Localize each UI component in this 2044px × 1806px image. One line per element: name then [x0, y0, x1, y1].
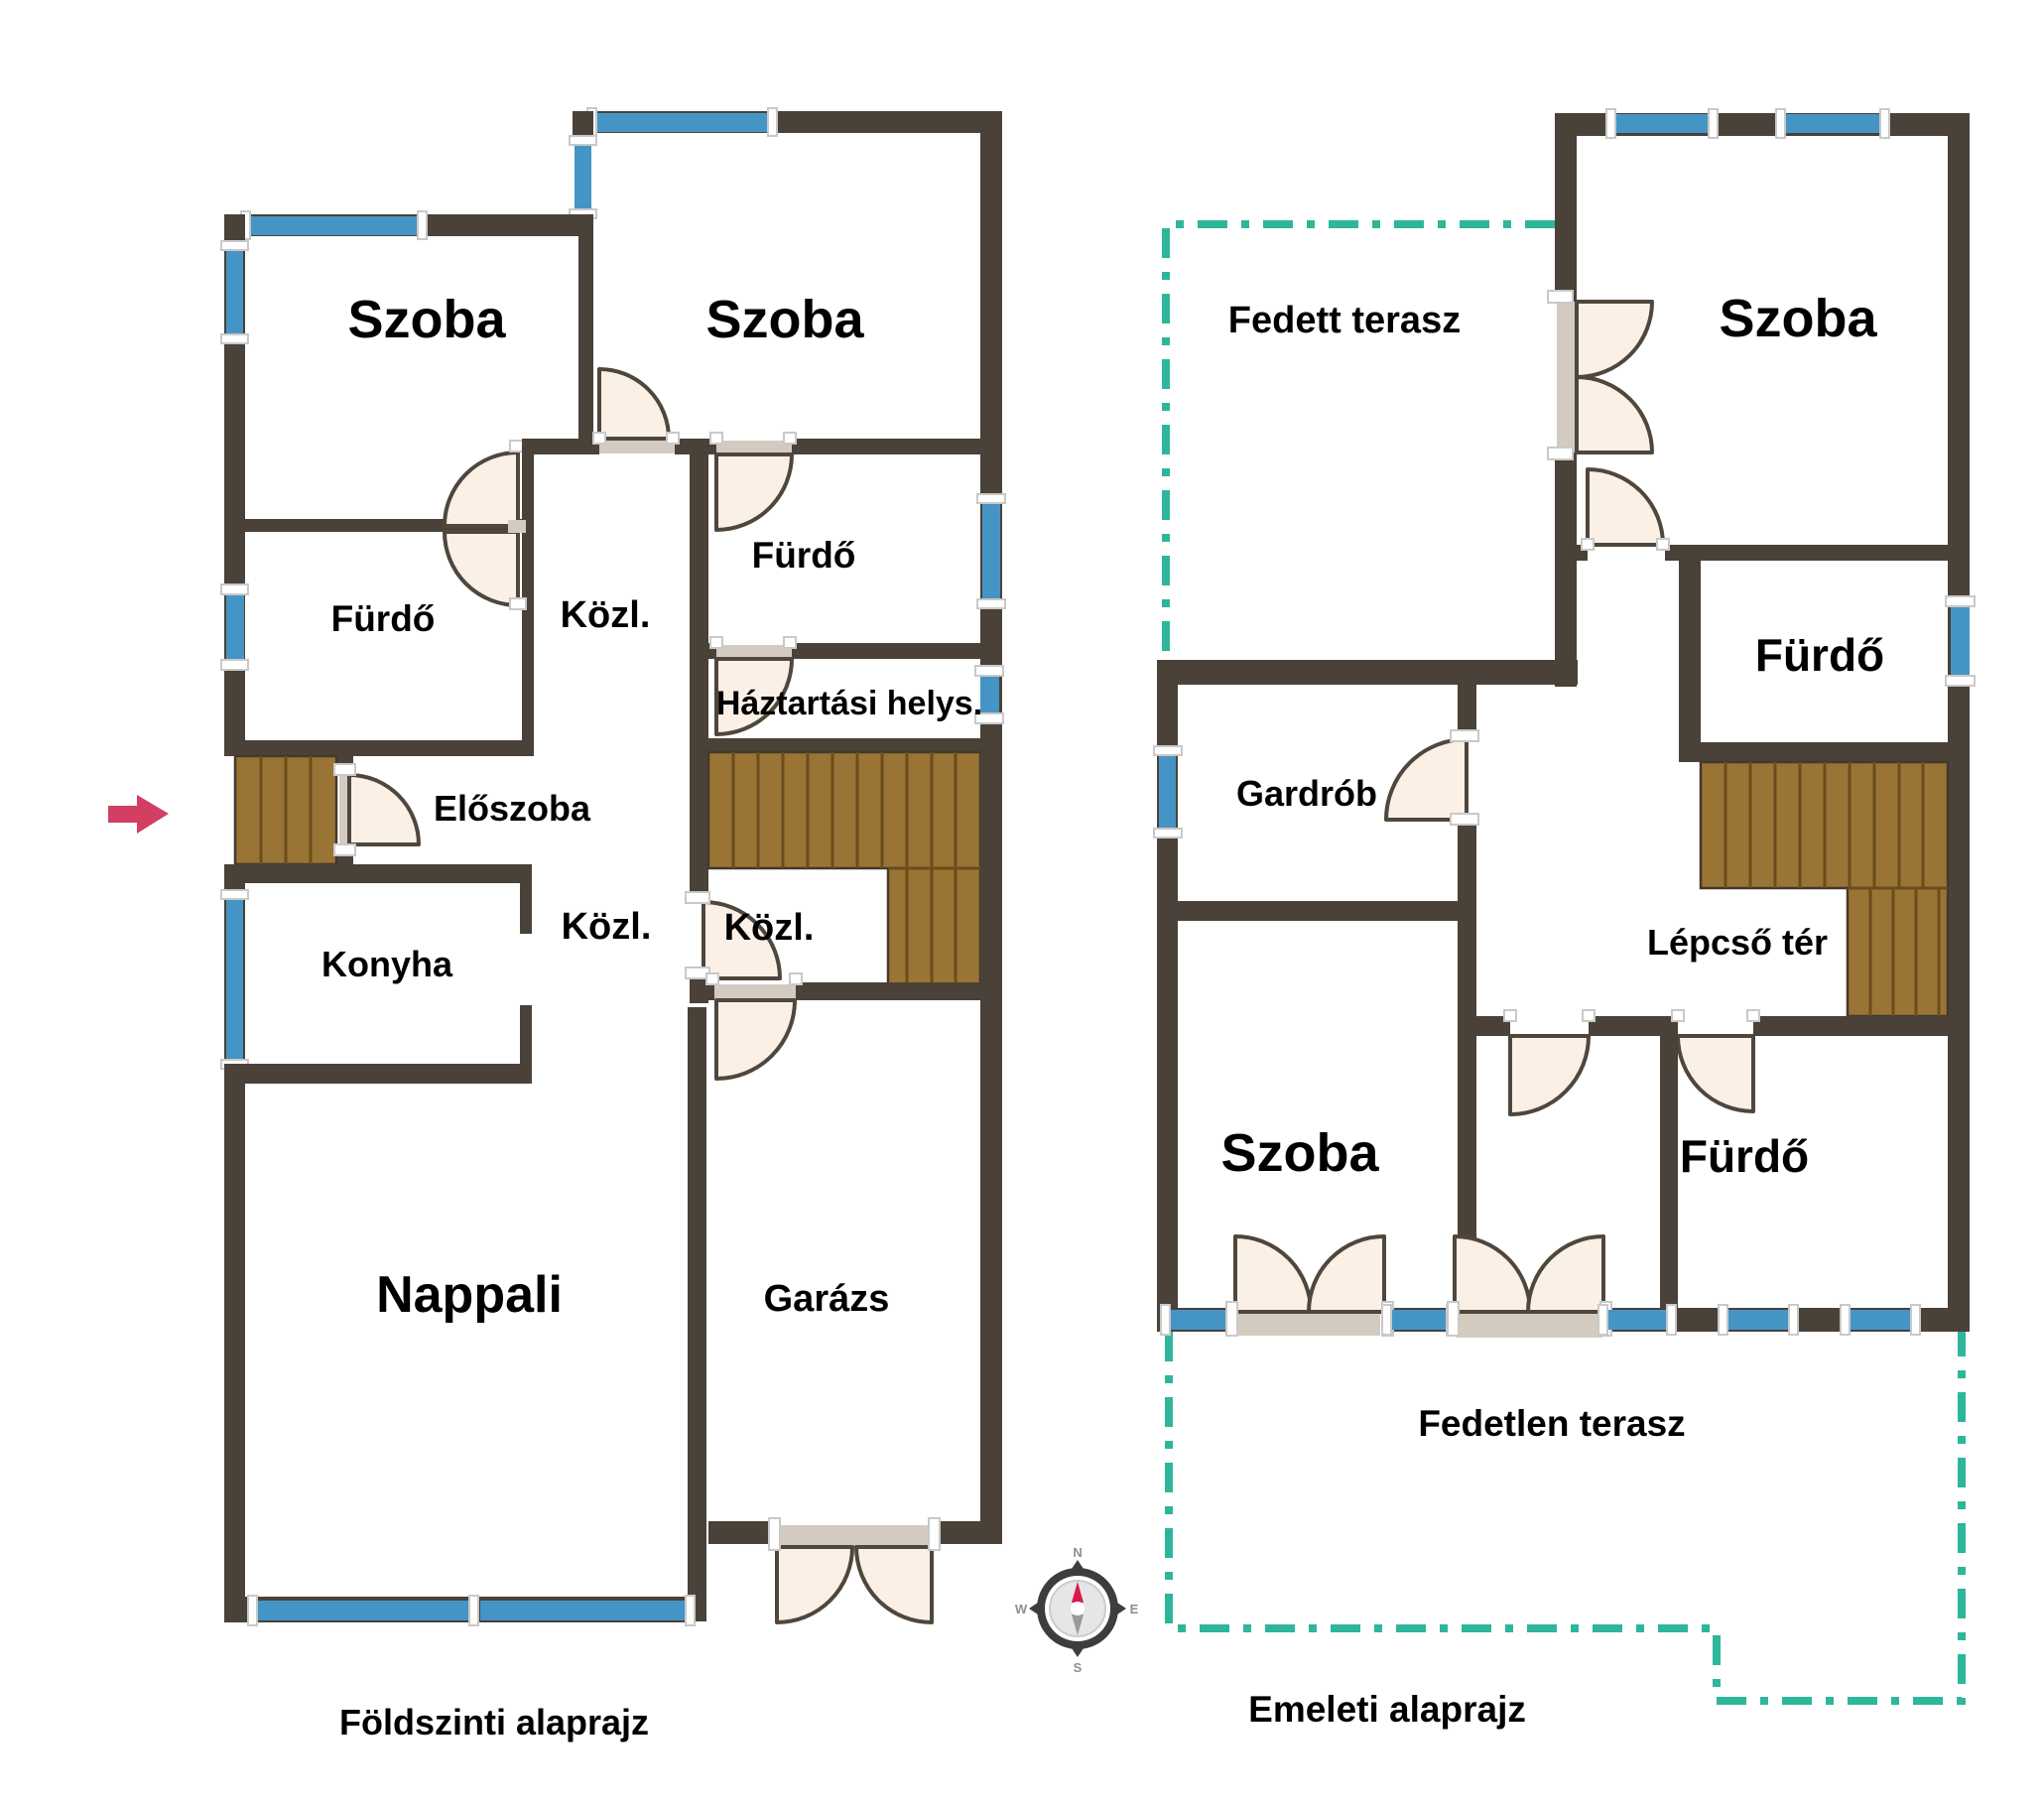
- svg-text:Fedetlen terasz: Fedetlen terasz: [1418, 1403, 1685, 1444]
- svg-text:Szoba: Szoba: [1220, 1123, 1379, 1183]
- svg-text:Garázs: Garázs: [764, 1278, 890, 1320]
- svg-text:Emeleti alaprajz: Emeleti alaprajz: [1248, 1689, 1526, 1730]
- svg-text:Szoba: Szoba: [1719, 289, 1877, 348]
- svg-text:Szoba: Szoba: [347, 290, 506, 349]
- svg-text:Fedett terasz: Fedett terasz: [1228, 300, 1461, 341]
- svg-text:Nappali: Nappali: [376, 1266, 563, 1324]
- svg-text:Fürdő: Fürdő: [1680, 1130, 1809, 1182]
- svg-text:E: E: [1130, 1602, 1139, 1616]
- svg-text:Szoba: Szoba: [705, 290, 864, 349]
- svg-text:Háztartási helys.: Háztartási helys.: [716, 685, 982, 722]
- svg-text:Lépcső tér: Lépcső tér: [1647, 922, 1828, 963]
- svg-text:S: S: [1074, 1660, 1083, 1675]
- svg-text:Fürdő: Fürdő: [752, 535, 856, 576]
- svg-text:N: N: [1073, 1545, 1082, 1560]
- svg-text:W: W: [1015, 1602, 1028, 1616]
- svg-text:Közl.: Közl.: [724, 907, 815, 949]
- svg-text:Gardrób: Gardrób: [1236, 773, 1377, 814]
- svg-text:Közl.: Közl.: [562, 906, 652, 948]
- svg-text:Fürdő: Fürdő: [331, 598, 436, 639]
- svg-text:Előszoba: Előszoba: [434, 788, 591, 829]
- svg-text:Fürdő: Fürdő: [1755, 629, 1884, 681]
- svg-text:Földszinti alaprajz: Földszinti alaprajz: [339, 1702, 649, 1742]
- svg-text:Konyha: Konyha: [321, 944, 453, 984]
- svg-text:Közl.: Közl.: [561, 594, 651, 636]
